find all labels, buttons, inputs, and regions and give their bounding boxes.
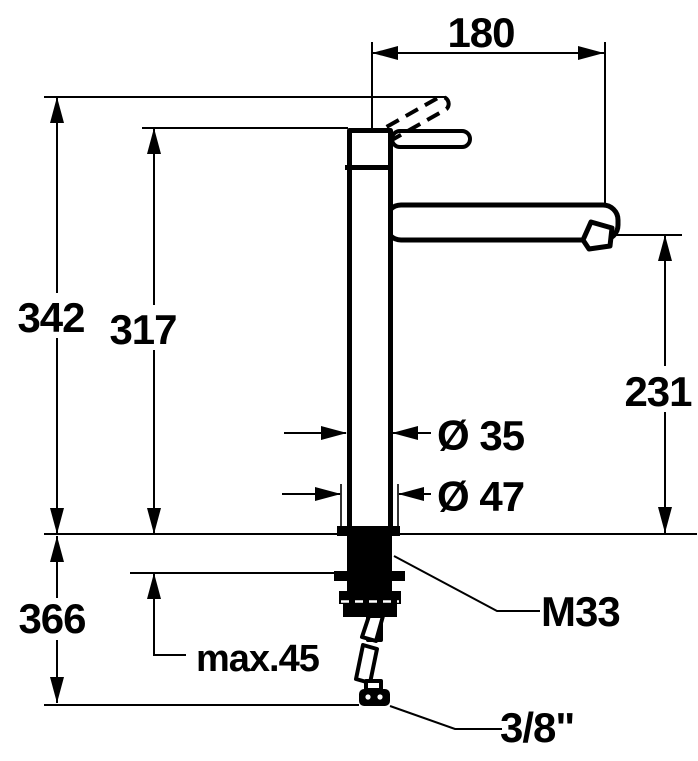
dim-text-below-deck-length: 366 [18, 595, 85, 642]
dim-text-spout-reach: 180 [447, 9, 514, 56]
arrowhead-d35-left [321, 426, 347, 440]
dim-text-supply-connection: 3/8" [500, 704, 574, 751]
arrowhead-366-top [50, 536, 64, 562]
dim-text-fixing-thread: M33 [541, 588, 620, 635]
arrowhead-231-top [658, 235, 672, 261]
dim-text-overall-height: 342 [17, 294, 84, 341]
arrowhead-231-bottom [658, 507, 672, 533]
hose-neck [366, 681, 381, 690]
lever-handle [392, 131, 470, 147]
arrowhead-d47-right [398, 487, 424, 501]
arrowhead-317-bottom [147, 508, 161, 534]
dim-text-outlet-height: 231 [624, 368, 692, 415]
faucet-column [350, 131, 391, 529]
hose-connection-nut [359, 689, 390, 706]
nut-highlight-dot-left [365, 694, 370, 699]
arrowhead-180-left [372, 46, 398, 60]
dim-text-body-height: 317 [109, 306, 176, 353]
faucet-dimension-diagram: 180 342 317 231 Ø 35 Ø 47 366 max.45 M33… [0, 0, 698, 761]
arrowhead-366-bottom [50, 677, 64, 703]
dim-text-body-diameter: Ø 35 [437, 412, 525, 459]
technical-drawing-sheet: 180 342 317 231 Ø 35 Ø 47 366 max.45 M33… [0, 0, 698, 761]
dim-text-base-diameter: Ø 47 [437, 473, 524, 520]
leader-max45 [154, 573, 186, 655]
arrowhead-d35-right [392, 426, 418, 440]
faucet-body [345, 97, 618, 529]
leader-m33 [394, 556, 540, 611]
arrowhead-317-top [147, 128, 161, 154]
arrowhead-342-top [50, 97, 64, 123]
mounting-hardware [334, 526, 405, 706]
arrowhead-d47-left [315, 487, 341, 501]
dim-text-max-deck-thickness: max.45 [196, 638, 320, 680]
threaded-shank [347, 536, 392, 572]
nut-highlight-dot-right [377, 694, 382, 699]
shank-lower [347, 581, 392, 591]
hose-segment-lower [356, 645, 377, 683]
arrowhead-max45 [147, 573, 161, 599]
aerator-outlet [583, 222, 612, 249]
arrowhead-342-bottom [50, 508, 64, 534]
arrowhead-180-right [578, 46, 604, 60]
leader-hose-connection [390, 706, 502, 729]
